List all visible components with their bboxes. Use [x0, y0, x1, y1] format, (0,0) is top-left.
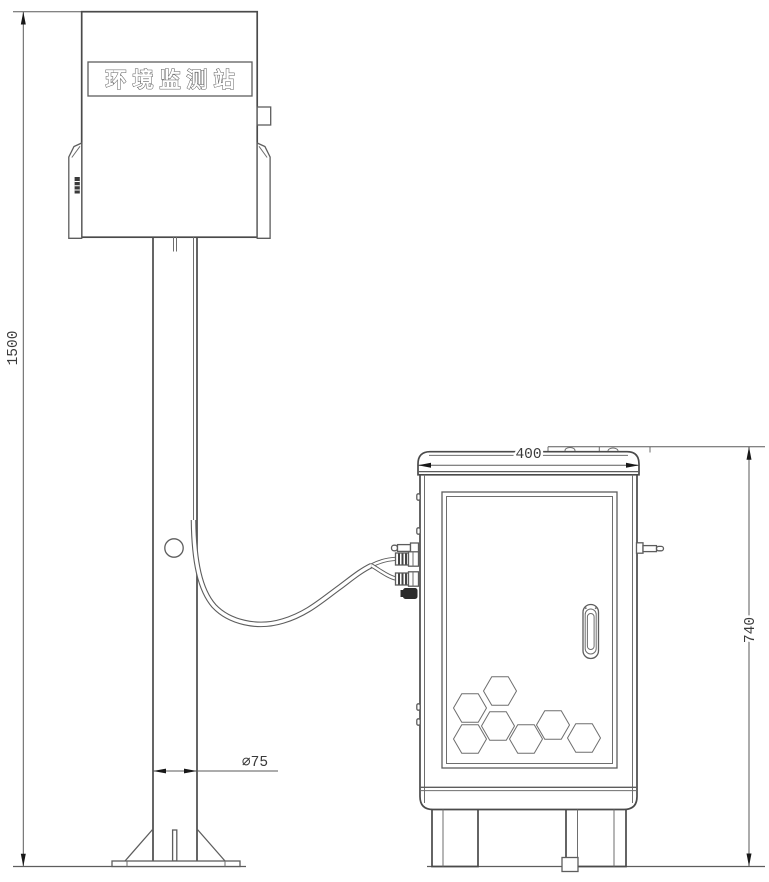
pole-base [112, 829, 240, 867]
head-enclosure [82, 12, 258, 238]
dimension-pole-diameter: ∅75 [153, 755, 278, 773]
dimension-text-740: 740 [743, 617, 759, 643]
connection-cable [194, 520, 397, 624]
arrowhead-down-icon [21, 854, 26, 867]
cable-outline [194, 520, 372, 624]
cable-gland-upper [396, 552, 419, 566]
leg-foot-step [562, 858, 578, 872]
right-rod-tip [657, 546, 664, 550]
vent-grille [75, 177, 80, 194]
pole-top-stub [174, 237, 177, 251]
arrowhead-down-icon [747, 854, 752, 867]
monitoring-station-head: 环境监测站 [69, 12, 271, 239]
aux-connector [404, 589, 418, 599]
right-rod [643, 546, 657, 552]
side-tab [257, 107, 271, 125]
dimension-pole-height: 1500 [6, 12, 82, 867]
handle-screw-right [595, 607, 597, 609]
mounting-pole [153, 237, 197, 861]
right-gusset [197, 829, 225, 861]
equipment-cabinet: 400 [392, 447, 664, 872]
right-leg-edges [578, 810, 615, 867]
hinge [417, 494, 420, 500]
right-wing [257, 143, 270, 238]
center-rib [173, 830, 177, 861]
cabinet-legs [432, 810, 626, 872]
station-name-label: 环境监测站 [106, 68, 241, 92]
cable-branch-lower-core [372, 566, 397, 579]
cabinet-body [420, 475, 637, 810]
technical-drawing-page: 1500 环境监测站 ∅ [0, 0, 769, 882]
hinge [417, 704, 420, 710]
pole-hole [165, 539, 183, 557]
aux-connector-cap [401, 591, 404, 597]
right-rod-mount [637, 543, 644, 553]
hinge [417, 528, 420, 534]
dimension-text-75: ∅75 [242, 755, 268, 771]
arrowhead-left-icon [153, 769, 166, 774]
left-leg [432, 810, 478, 867]
arrowhead-right-icon [184, 769, 197, 774]
left-gusset [125, 829, 153, 861]
arrowhead-up-icon [747, 447, 752, 460]
dimension-text-1500: 1500 [6, 331, 22, 366]
handle-screw-left [585, 607, 587, 609]
cable-gland-lower [396, 572, 419, 586]
right-side-rod [637, 543, 664, 553]
left-rod [398, 545, 411, 552]
door-handle [583, 605, 599, 659]
dimension-text-400: 400 [515, 447, 541, 463]
environmental-station-drawing: 1500 环境监测站 ∅ [0, 0, 769, 882]
hinge [417, 719, 420, 725]
arrowhead-up-icon [21, 12, 26, 25]
base-plate [112, 861, 240, 867]
left-rod-cap [392, 545, 398, 551]
left-side-fittings [392, 543, 419, 599]
